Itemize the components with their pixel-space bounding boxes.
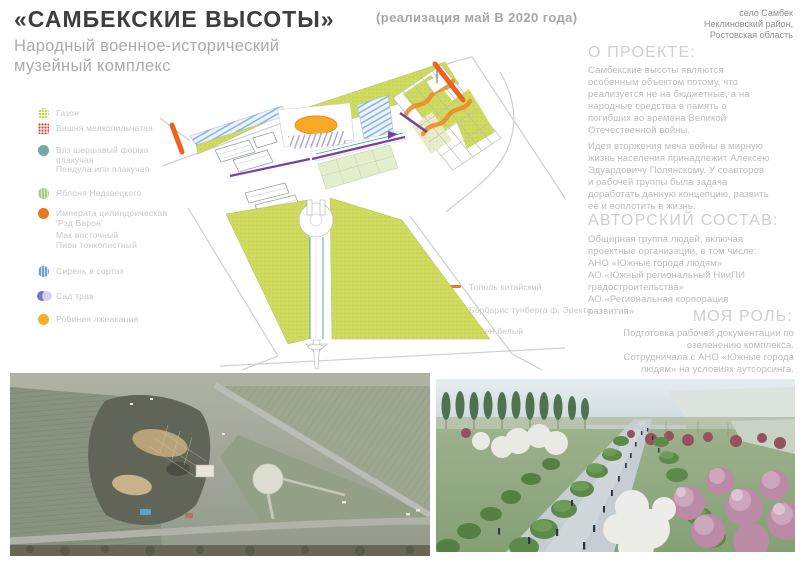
lawn-swatch-icon (38, 108, 49, 119)
lilac-swatch-icon (38, 266, 49, 277)
location-text: село Самбек Неклиновский район, Ростовск… (704, 8, 793, 41)
legend-label: Вяз шершавый форма плакучая Пендула или … (56, 146, 150, 175)
aerial-photo-art (10, 373, 430, 556)
legend-label: Яблоня Недзвецкого (56, 189, 141, 199)
about-paragraph-2: Идея вторжения меча войны в мирную жизнь… (588, 141, 794, 213)
blank-swatch-icon (38, 230, 49, 241)
legend-label: Сад трав (56, 292, 94, 302)
authors-heading: АВТОРСКИЙ СОСТАВ: (588, 212, 779, 230)
page-title: «САМБЕКСКИЕ ВЫСОТЫ» (14, 6, 335, 33)
plan-lawn-right (330, 198, 490, 339)
park-render (436, 379, 795, 552)
legend-label: Робиния лжеакация (56, 315, 138, 325)
master-plan-drawing (160, 48, 570, 370)
imperata-swatch-icon (38, 208, 49, 219)
plan-amphitheatre (295, 116, 337, 134)
cherry-swatch-icon (38, 123, 49, 134)
legend-label: Сирень в сортах (56, 267, 124, 277)
realization-note: (реализация май В 2020 года) (376, 10, 578, 25)
elm-swatch-icon (38, 145, 49, 156)
role-body: Подготовка рабочей документации по озеле… (588, 328, 794, 376)
herb-garden-swatch-icon (38, 291, 49, 302)
aerial-photo (10, 373, 430, 556)
park-render-art (436, 379, 795, 552)
apple-swatch-icon (38, 188, 49, 199)
authors-body: Общирная группа людей, включая проектные… (588, 234, 794, 318)
about-paragraph-1: Самбекские высоты являются особенным объ… (588, 65, 794, 137)
portfolio-slide: «САМБЕКСКИЕ ВЫСОТЫ» Народный военное-ист… (0, 0, 800, 566)
robinia-swatch-icon (38, 314, 49, 325)
legend-label: Вишня мелкопильчатая (56, 124, 153, 134)
role-heading: МОЯ РОЛЬ: (588, 308, 793, 326)
legend-label: Императа цилиндрическая 'Рэд Барон' (56, 209, 167, 228)
about-heading: О ПРОЕКТЕ: (588, 44, 696, 62)
master-plan (160, 48, 570, 370)
legend-label: Мак восточный Пион тонколистный (56, 231, 137, 250)
legend-label: Газон (56, 109, 79, 119)
